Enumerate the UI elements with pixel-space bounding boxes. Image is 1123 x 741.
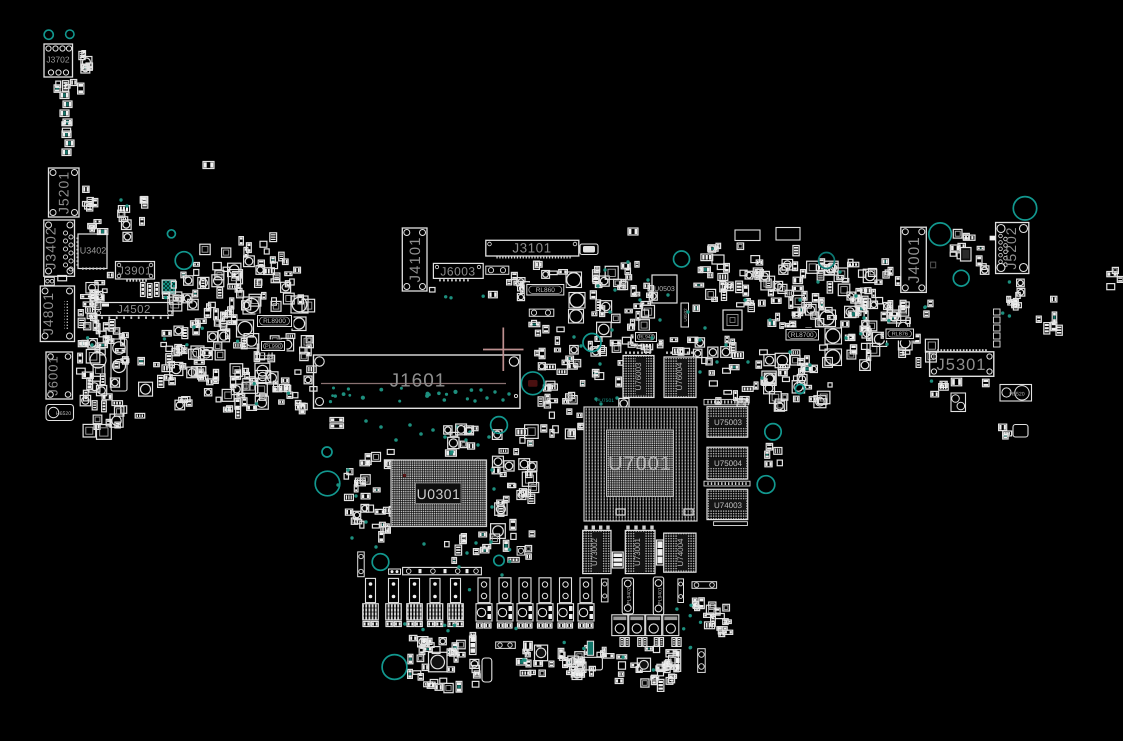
svg-text:U75004: U75004 bbox=[714, 459, 743, 468]
svg-text:RL876: RL876 bbox=[892, 332, 908, 338]
svg-text:U75003: U75003 bbox=[714, 418, 743, 427]
svg-text:PU7501: PU7501 bbox=[596, 398, 614, 404]
svg-text:J5201: J5201 bbox=[56, 171, 72, 214]
svg-text:U73002: U73002 bbox=[590, 537, 599, 566]
svg-text:RL8900: RL8900 bbox=[263, 318, 286, 325]
svg-text:H5520: H5520 bbox=[1009, 391, 1024, 397]
svg-text:U74003: U74003 bbox=[714, 501, 743, 510]
svg-text:J3901: J3901 bbox=[118, 266, 152, 278]
svg-text:U76003: U76003 bbox=[634, 362, 643, 391]
svg-text:J5202: J5202 bbox=[1003, 226, 1019, 269]
svg-text:J3101: J3101 bbox=[512, 241, 551, 256]
svg-text:J3402: J3402 bbox=[43, 226, 59, 269]
svg-text:U76004: U76004 bbox=[675, 362, 684, 391]
svg-text:U0301: U0301 bbox=[417, 486, 461, 502]
svg-text:U0502: U0502 bbox=[683, 308, 688, 322]
svg-text:J6001: J6001 bbox=[46, 355, 61, 395]
svg-text:J4801: J4801 bbox=[40, 292, 56, 335]
svg-text:U3402: U3402 bbox=[80, 246, 107, 256]
svg-text:J4001: J4001 bbox=[906, 236, 923, 283]
svg-text:J4101: J4101 bbox=[407, 237, 424, 283]
svg-text:H6520: H6520 bbox=[56, 411, 71, 417]
svg-text:PL990: PL990 bbox=[265, 344, 281, 350]
svg-text:RL8700: RL8700 bbox=[791, 332, 814, 339]
svg-text:J3702: J3702 bbox=[46, 55, 69, 65]
svg-text:RL860: RL860 bbox=[536, 287, 556, 294]
svg-text:J1601: J1601 bbox=[390, 371, 447, 392]
svg-text:U7001: U7001 bbox=[608, 453, 672, 475]
svg-text:J5301: J5301 bbox=[937, 356, 987, 374]
svg-text:PL9402: PL9402 bbox=[627, 587, 633, 604]
svg-text:J4502: J4502 bbox=[117, 304, 151, 316]
svg-text:U0503: U0503 bbox=[654, 286, 675, 293]
svg-text:U74004: U74004 bbox=[676, 538, 685, 567]
svg-text:U73001: U73001 bbox=[633, 537, 642, 566]
svg-text:J6003: J6003 bbox=[440, 265, 475, 279]
svg-text:PL9401: PL9401 bbox=[658, 587, 664, 604]
